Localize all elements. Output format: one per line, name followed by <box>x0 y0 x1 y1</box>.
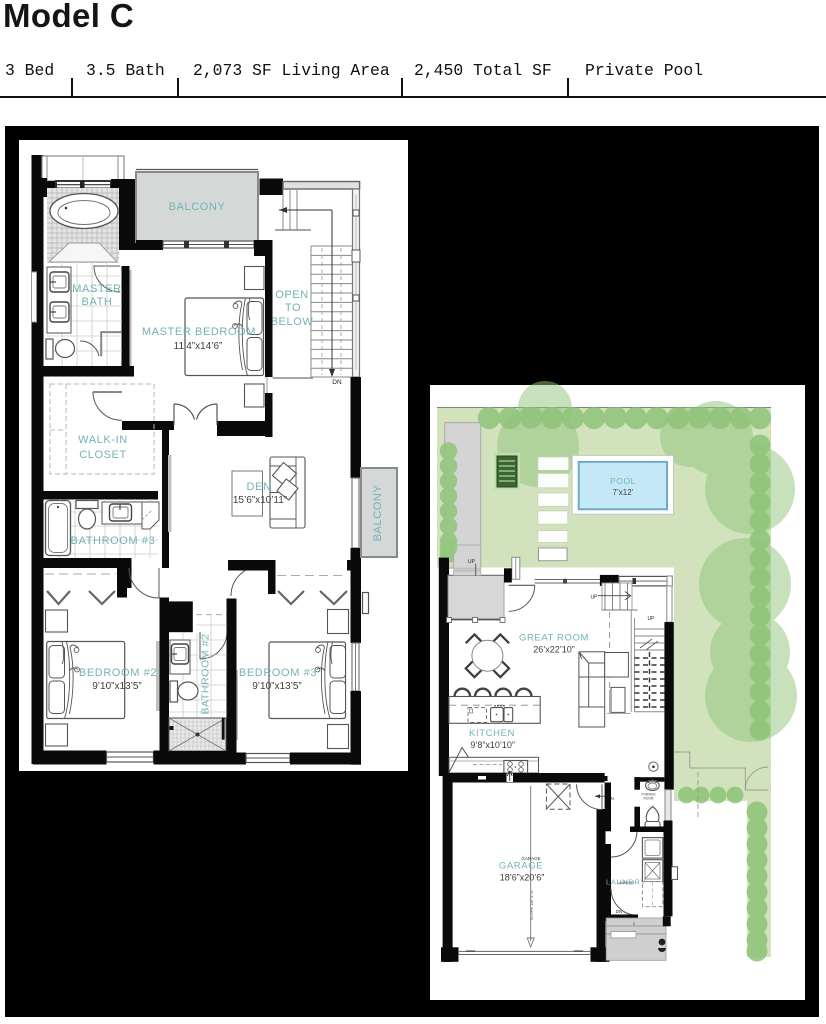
svg-text:BELOW: BELOW <box>271 316 314 328</box>
svg-text:MASTER: MASTER <box>72 283 121 295</box>
svg-text:9’8”x10’10”: 9’8”x10’10” <box>470 740 515 750</box>
svg-text:UP: UP <box>648 616 656 622</box>
svg-text:BEDROOM #2: BEDROOM #2 <box>79 667 157 679</box>
svg-text:TO: TO <box>285 302 301 314</box>
svg-text:9’10”x13’5”: 9’10”x13’5” <box>252 681 301 692</box>
svg-text:POOL: POOL <box>610 476 636 486</box>
svg-text:BALCONY: BALCONY <box>372 485 384 542</box>
svg-text:SLOPE 1/8”:1’-0”: SLOPE 1/8”:1’-0” <box>529 889 534 920</box>
svg-text:9’10”x13’5”: 9’10”x13’5” <box>92 681 141 692</box>
svg-text:GREAT ROOM: GREAT ROOM <box>519 633 589 644</box>
svg-text:UP: UP <box>468 559 476 565</box>
svg-text:11’4”x14’6”: 11’4”x14’6” <box>174 341 223 352</box>
svg-text:26’x22’10”: 26’x22’10” <box>533 645 575 655</box>
svg-text:BATHROOM #3: BATHROOM #3 <box>71 535 156 547</box>
svg-text:KITCHEN: KITCHEN <box>469 728 515 739</box>
svg-text:ROOM: ROOM <box>644 797 654 801</box>
svg-text:DN: DN <box>332 379 342 386</box>
svg-text:DN: DN <box>616 909 623 914</box>
svg-text:LAUNDRY: LAUNDRY <box>617 881 635 885</box>
svg-text:OPEN: OPEN <box>275 289 309 301</box>
svg-text:MASTER BEDROOM: MASTER BEDROOM <box>142 326 256 338</box>
svg-text:WALK-IN: WALK-IN <box>78 434 128 446</box>
svg-text:15’6”x10’11”: 15’6”x10’11” <box>233 495 287 506</box>
svg-text:DEN: DEN <box>246 481 271 493</box>
svg-text:UP: UP <box>591 595 599 601</box>
svg-text:7’x12’: 7’x12’ <box>613 488 634 497</box>
svg-text:BATHROOM #2: BATHROOM #2 <box>200 633 212 714</box>
svg-text:GARAGE: GARAGE <box>499 861 543 872</box>
svg-text:BALCONY: BALCONY <box>169 201 226 213</box>
svg-text:CLOSET: CLOSET <box>79 449 127 461</box>
svg-text:BEDROOM #3: BEDROOM #3 <box>239 667 317 679</box>
svg-text:18’6”x20’6”: 18’6”x20’6” <box>500 873 545 883</box>
svg-text:BATH: BATH <box>82 296 113 308</box>
